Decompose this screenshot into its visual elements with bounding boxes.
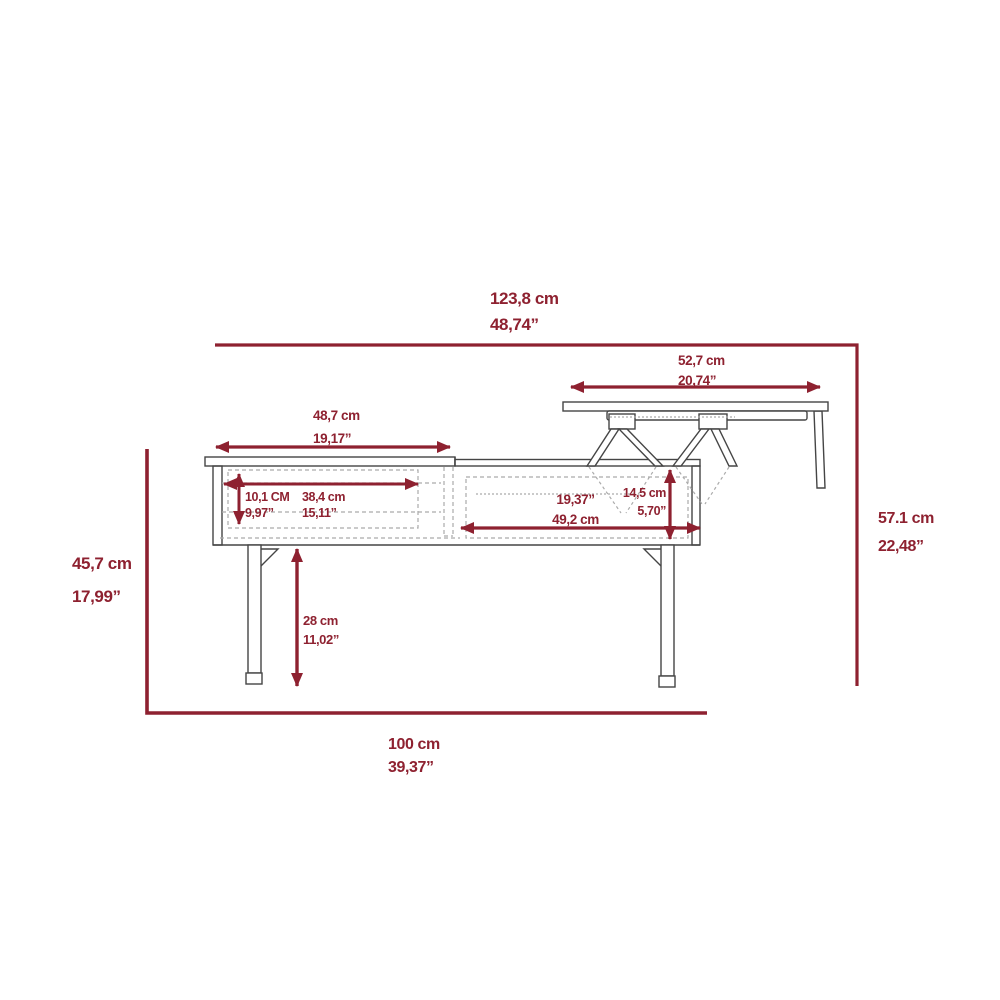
lift-bracket-right (699, 414, 727, 429)
right-leg (644, 545, 675, 687)
right-top-rail (455, 460, 700, 467)
lift-strut (711, 429, 737, 466)
dim-label-drawer-width: 38,4 cm 15,11” (302, 489, 345, 521)
dim-label-left-top-width: 48,7 cm 19,17” (313, 404, 360, 450)
dim-label-base-depth: 100 cm 39,37” (388, 733, 440, 779)
lift-bracket-left (609, 414, 635, 429)
dim-label-table-height: 45,7 cm 17,99” (72, 547, 132, 613)
dimension-diagram-svg (0, 0, 1000, 1000)
left-leg (246, 545, 278, 684)
lift-top-assembly (563, 402, 828, 488)
dimension-diagram: 123,8 cm 48,74” 52,7 cm 20,74” 48,7 cm 1… (0, 0, 1000, 1000)
left-tabletop (205, 457, 455, 466)
dim-label-overall-width: 123,8 cm 48,74” (490, 286, 559, 338)
dim-label-drawer-height: 10,1 CM 9,97” (245, 489, 289, 521)
dim-label-right-compartment-depth: 14,5 cm 5,70” (600, 484, 666, 520)
dim-label-lift-top-width: 52,7 cm 20,74” (678, 351, 725, 391)
dim-label-leg-height: 28 cm 11,02” (303, 611, 339, 649)
left-side-panel (213, 466, 222, 545)
lift-top-slab (563, 402, 828, 411)
lift-support-bar (814, 411, 825, 488)
dim-label-lifted-top-height: 57.1 cm 22,48” (878, 505, 934, 561)
right-side-panel (692, 466, 700, 545)
